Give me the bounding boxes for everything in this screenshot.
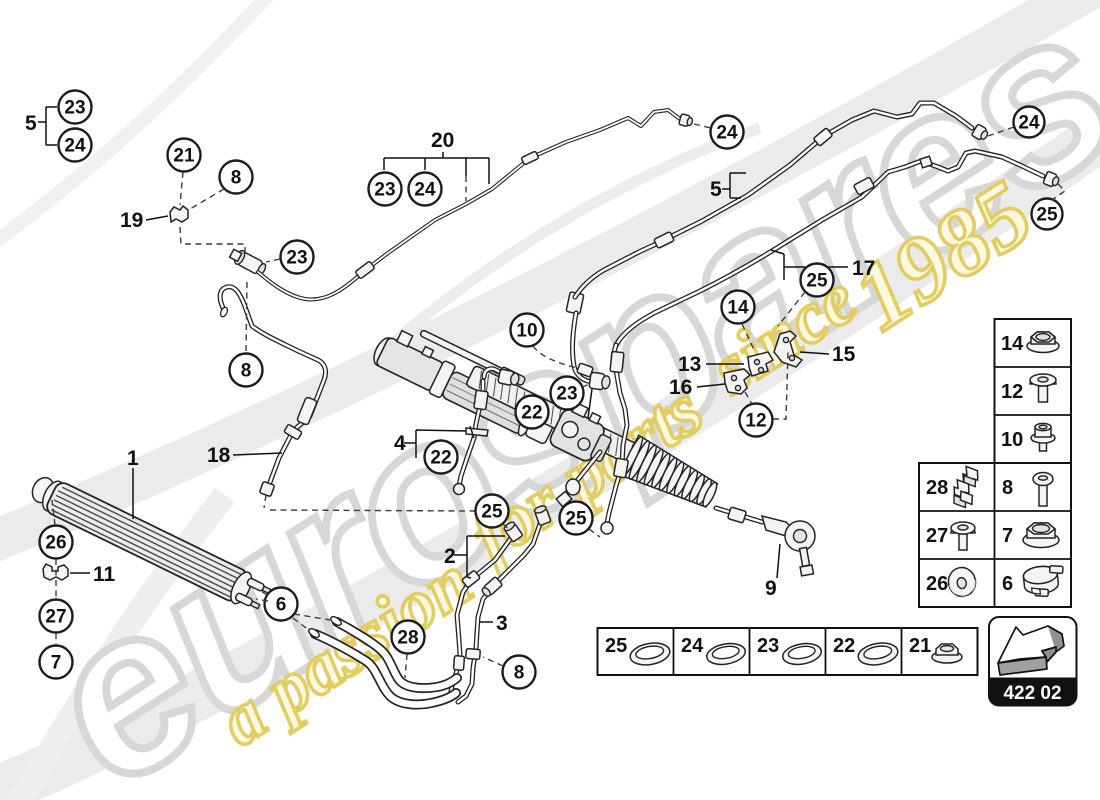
svg-text:7: 7 [1002,525,1013,547]
svg-text:24: 24 [64,136,86,157]
svg-text:18: 18 [207,444,231,467]
svg-text:12: 12 [1001,381,1023,403]
svg-text:17: 17 [852,257,875,280]
svg-text:23: 23 [556,384,577,405]
svg-text:21: 21 [909,635,931,657]
svg-text:10: 10 [516,321,537,342]
svg-text:8: 8 [514,663,525,684]
svg-text:27: 27 [45,607,66,628]
svg-text:2: 2 [444,545,456,568]
svg-text:24: 24 [716,123,738,144]
svg-text:3: 3 [496,612,508,635]
svg-text:6: 6 [1002,573,1013,595]
svg-text:7: 7 [51,653,62,674]
svg-text:6: 6 [276,595,287,616]
svg-text:15: 15 [832,343,856,366]
svg-text:8: 8 [1002,477,1013,499]
svg-text:11: 11 [93,563,116,586]
svg-text:23: 23 [286,248,307,269]
svg-text:22: 22 [430,448,451,469]
svg-text:26: 26 [45,533,66,554]
svg-text:25: 25 [565,509,587,530]
svg-text:28: 28 [397,628,418,649]
svg-text:14: 14 [727,298,749,319]
svg-text:8: 8 [241,361,252,382]
svg-text:5: 5 [25,112,37,135]
svg-text:14: 14 [1001,333,1024,355]
svg-text:25: 25 [481,502,503,523]
svg-text:1: 1 [127,447,139,470]
svg-text:25: 25 [1036,205,1058,226]
svg-text:22: 22 [833,635,855,657]
svg-text:24: 24 [414,180,436,201]
svg-text:27: 27 [926,525,948,547]
svg-text:20: 20 [431,129,454,152]
svg-text:23: 23 [374,180,395,201]
svg-text:26: 26 [926,573,948,595]
svg-text:25: 25 [605,635,627,657]
svg-text:23: 23 [757,635,779,657]
svg-text:13: 13 [678,353,701,376]
svg-text:12: 12 [745,411,766,432]
svg-text:24: 24 [681,635,704,657]
svg-text:8: 8 [231,168,242,189]
svg-text:22: 22 [521,403,542,424]
svg-text:10: 10 [1001,429,1023,451]
svg-text:19: 19 [120,209,143,232]
svg-text:16: 16 [669,376,692,399]
svg-text:422 02: 422 02 [1003,683,1061,704]
svg-text:5: 5 [710,178,722,201]
svg-text:9: 9 [765,577,777,600]
svg-text:25: 25 [806,271,828,292]
svg-text:24: 24 [1018,113,1040,134]
svg-text:21: 21 [173,146,195,167]
svg-text:23: 23 [64,98,85,119]
svg-text:28: 28 [926,477,948,499]
